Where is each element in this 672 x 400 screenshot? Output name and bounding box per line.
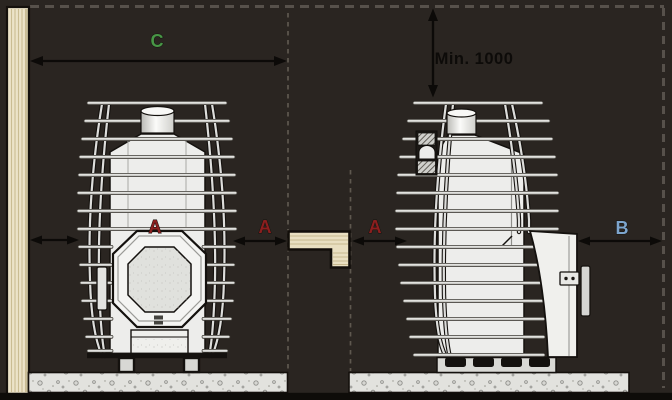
- flue-collar-front: [141, 107, 174, 134]
- dimension-a-left-label: A: [149, 217, 162, 237]
- heater-base-side: [437, 358, 556, 373]
- brand-logo: [154, 316, 163, 320]
- wood-wall-panel: [7, 7, 29, 394]
- ash-drawer: [131, 330, 188, 354]
- dimension-b-label: B: [616, 218, 629, 238]
- door-handle-front-view: [97, 267, 107, 310]
- stove-door-octagon: [113, 231, 206, 327]
- diagram-canvas: C Min. 1000 A A A B: [0, 0, 672, 400]
- dimension-c-label: C: [151, 31, 164, 51]
- dimension-ceiling-label: Min. 1000: [435, 50, 514, 68]
- floor-pad-left: [29, 373, 288, 393]
- floor-pad-right: [349, 373, 629, 393]
- flue-collar-side: [447, 109, 476, 134]
- installation-clearance-diagram: C Min. 1000 A A A B: [0, 0, 672, 400]
- vent-connection-box: [416, 131, 437, 175]
- dimension-a-center-left-label: A: [259, 217, 272, 237]
- floor-base-line: [0, 393, 672, 400]
- dimension-a-center-right-label: A: [369, 217, 382, 237]
